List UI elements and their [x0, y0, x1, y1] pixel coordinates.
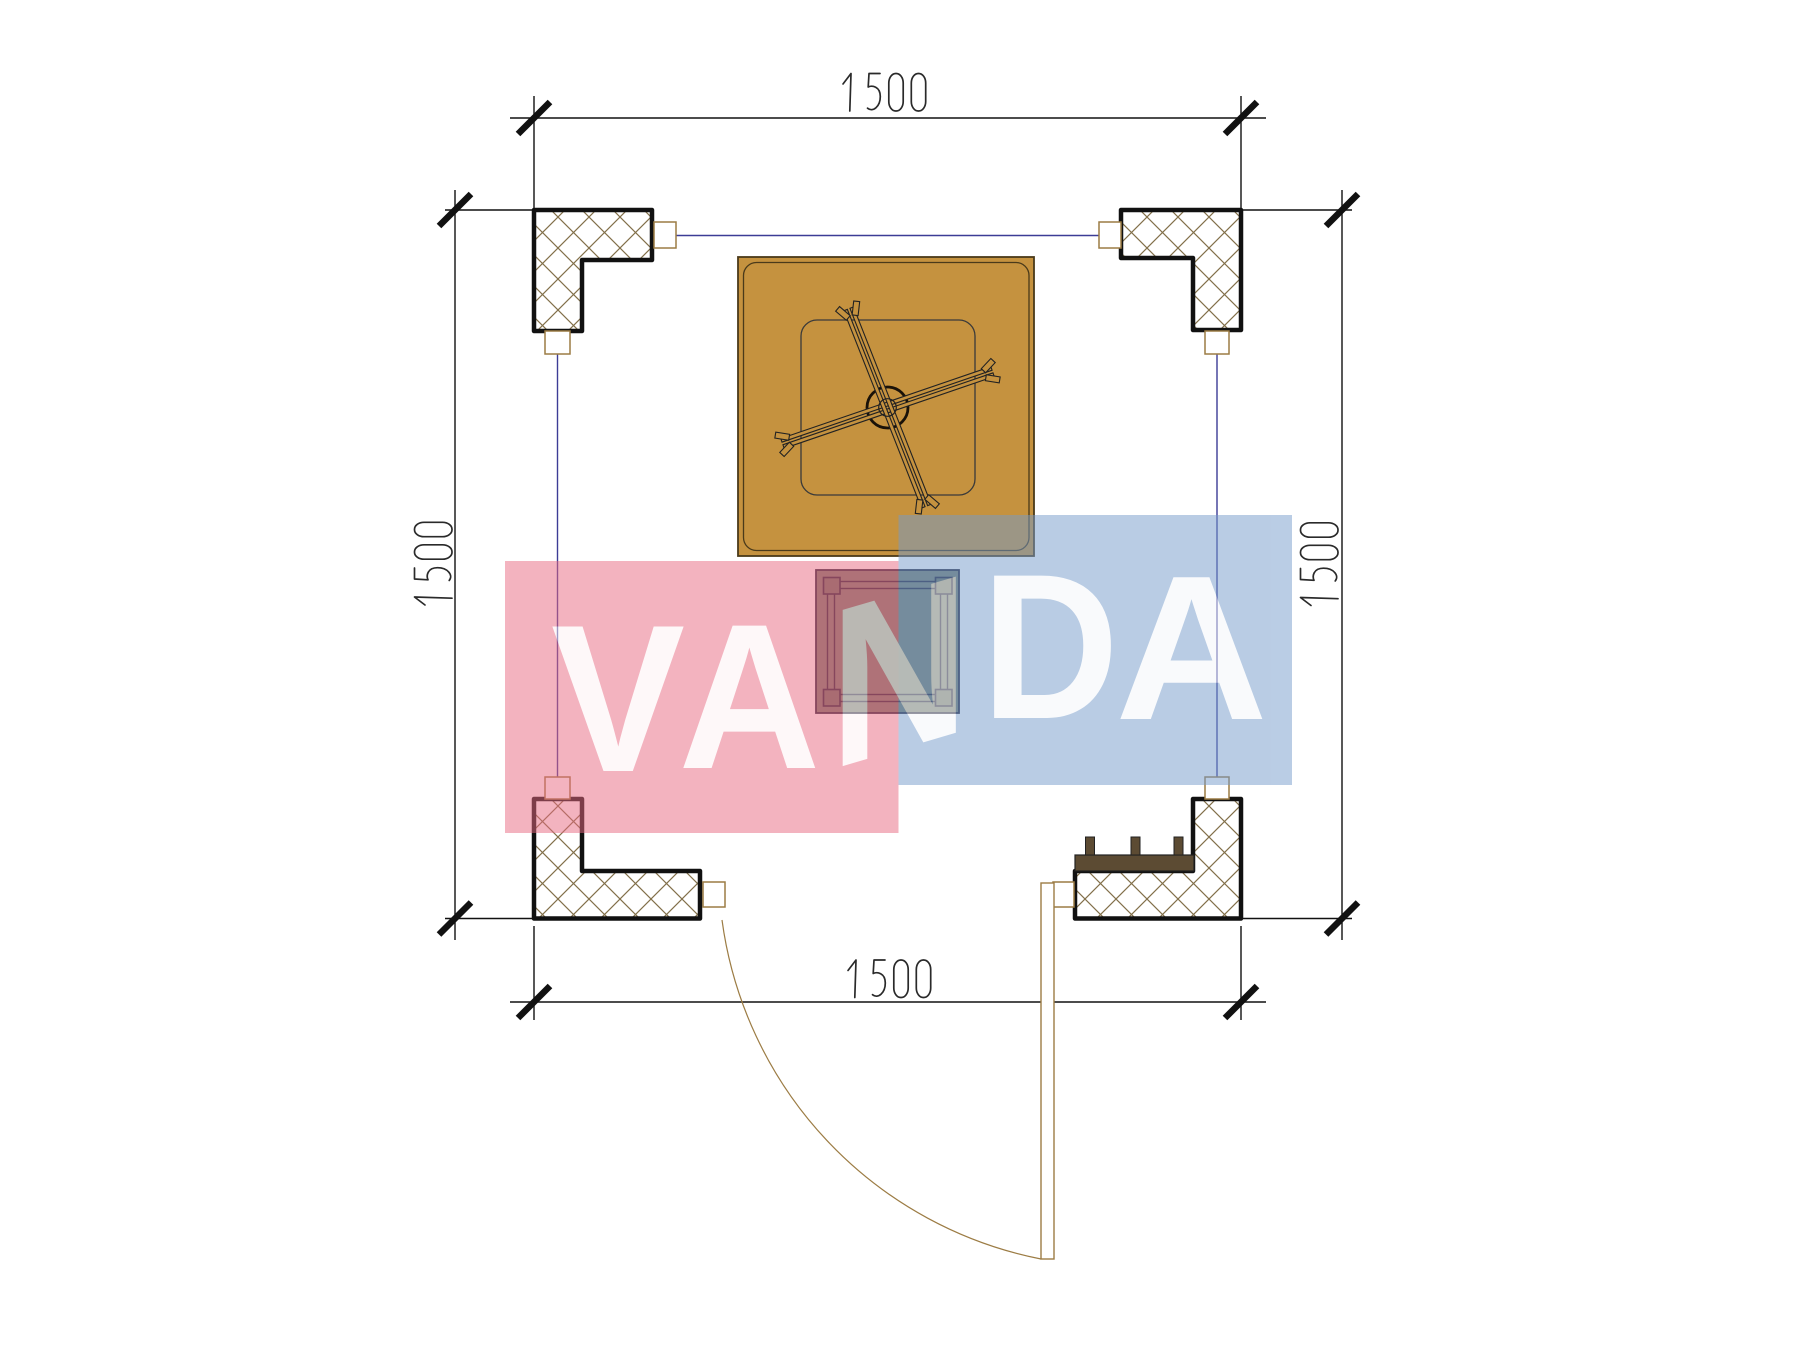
svg-text:A: A: [1115, 533, 1268, 763]
svg-text:A: A: [678, 581, 820, 812]
svg-text:D: D: [981, 531, 1119, 762]
svg-text:N: N: [830, 524, 969, 818]
svg-text:V: V: [551, 581, 685, 816]
